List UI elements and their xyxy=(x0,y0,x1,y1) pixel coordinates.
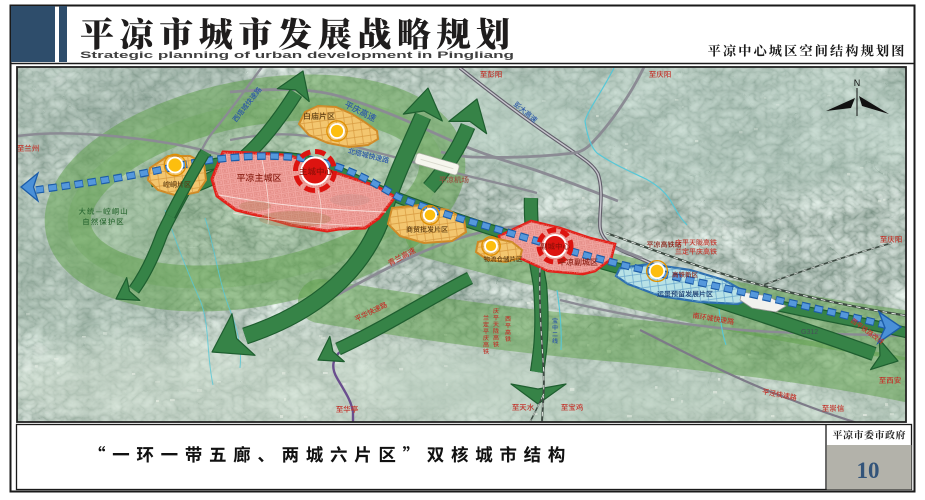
svg-text:10: 10 xyxy=(857,458,880,483)
svg-text:Strategic planning of urban de: Strategic planning of urban development … xyxy=(80,50,514,60)
svg-text:N: N xyxy=(854,78,861,88)
svg-text:G312: G312 xyxy=(801,329,818,336)
